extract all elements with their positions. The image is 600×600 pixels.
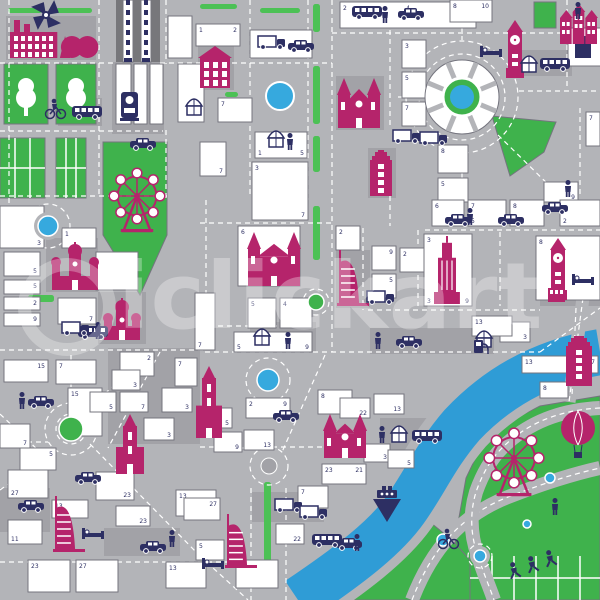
- block-number: 3: [427, 237, 431, 244]
- train-icon: [120, 92, 139, 121]
- block-number: 9: [305, 344, 309, 351]
- block-number: 13: [393, 406, 401, 413]
- wheel-roundabout: [425, 60, 499, 134]
- block-number: 5: [405, 75, 409, 82]
- block-number: 8: [539, 239, 543, 246]
- city-block: [96, 252, 138, 290]
- block-number: 6: [435, 203, 439, 210]
- block-number: 3: [405, 43, 409, 50]
- block-number: 2: [343, 5, 347, 12]
- block-number: 23: [139, 518, 147, 525]
- city-block: [234, 332, 312, 352]
- block-number: 13: [169, 565, 177, 572]
- amsterdam-landmark: [370, 150, 392, 196]
- block-number: 23: [31, 563, 39, 570]
- block-number: 1: [65, 231, 69, 238]
- city-map-illustration: 1271537735529177264810357785967589266295…: [0, 0, 600, 600]
- city-block: [150, 64, 163, 124]
- block-number: 5: [199, 543, 203, 550]
- block-number: 8: [453, 3, 457, 10]
- block-number: 3: [167, 432, 171, 439]
- block-number: 7: [59, 363, 63, 370]
- block-number: 23: [325, 467, 333, 474]
- block-number: 5: [225, 420, 229, 427]
- block-number: 2: [403, 251, 407, 258]
- block-number: 8: [543, 385, 547, 392]
- block-number: 5: [389, 277, 393, 284]
- block-number: 2: [147, 355, 151, 362]
- block-number: 5: [441, 181, 445, 188]
- block-number: 9: [33, 316, 37, 323]
- city-block: [168, 16, 192, 58]
- block-number: 27: [11, 490, 19, 497]
- kiosk-icon: [521, 56, 537, 72]
- block-number: 4: [283, 301, 287, 308]
- amsterdam-landmark: [566, 336, 592, 386]
- block-number: 2: [249, 401, 253, 408]
- block-number: 7: [178, 361, 182, 368]
- kiosk-icon: [254, 329, 270, 345]
- block-number: 7: [301, 212, 305, 219]
- block-number: 3: [427, 298, 431, 305]
- block-number: 7: [23, 440, 27, 447]
- block-number: 3: [37, 240, 41, 247]
- block-number: 11: [11, 536, 19, 543]
- block-number: 9: [389, 249, 393, 256]
- city-block: [536, 236, 600, 300]
- block-number: 21: [355, 467, 363, 474]
- block-number: 8: [441, 148, 445, 155]
- block-number: 3: [523, 334, 527, 341]
- block-number: 15: [71, 391, 79, 398]
- block-number: 7: [405, 105, 409, 112]
- block-number: 27: [209, 501, 217, 508]
- block-number: 7: [89, 316, 93, 323]
- block-number: 7: [221, 101, 225, 108]
- block-number: 3: [383, 454, 387, 461]
- block-number: 3: [133, 382, 137, 389]
- block-number: 5: [33, 268, 37, 275]
- block-number: 8: [513, 203, 517, 210]
- block-number: 2: [233, 27, 237, 34]
- block-number: 2: [339, 229, 343, 236]
- block-number: 13: [475, 319, 483, 326]
- block-number: 5: [109, 404, 113, 411]
- kioskPink-landmark: [548, 288, 565, 302]
- city-block: [252, 162, 308, 220]
- block-number: 3: [185, 404, 189, 411]
- block-number: 22: [293, 536, 301, 543]
- block-number: 3: [255, 165, 259, 172]
- block-number: 9: [235, 444, 239, 451]
- kiosk-icon: [186, 99, 202, 115]
- block-number: 2: [33, 300, 37, 307]
- station-landmark: [116, 0, 160, 62]
- block-number: 9: [283, 401, 287, 408]
- block-number: 27: [79, 563, 87, 570]
- block-number: 15: [37, 363, 45, 370]
- block-number: 5: [300, 150, 304, 157]
- block-number: 7: [219, 168, 223, 175]
- block-number: 1: [199, 27, 203, 34]
- block-number: 5: [33, 283, 37, 290]
- block-number: 7: [141, 404, 145, 411]
- block-number: 6: [241, 229, 245, 236]
- block-number: 5: [407, 460, 411, 467]
- block-number: 2: [563, 218, 567, 225]
- block-number: 7: [198, 342, 202, 349]
- map-canvas: 1271537735529177264810357785967589266295…: [0, 0, 600, 600]
- block-number: 13: [525, 359, 533, 366]
- pond-block: [258, 74, 302, 118]
- block-number: 7: [301, 489, 305, 496]
- block-number: 23: [123, 492, 131, 499]
- block-number: 9: [465, 298, 469, 305]
- block-number: 8: [321, 393, 325, 400]
- block-number: 5: [251, 301, 255, 308]
- block-number: 7: [589, 115, 593, 122]
- block-number: 1: [258, 150, 262, 157]
- block-number: 5: [49, 451, 53, 458]
- block-number: 5: [237, 344, 241, 351]
- block-number: 10: [481, 3, 489, 10]
- kiosk-icon: [268, 131, 284, 147]
- kiosk-icon: [391, 426, 407, 442]
- block-number: 13: [263, 442, 271, 449]
